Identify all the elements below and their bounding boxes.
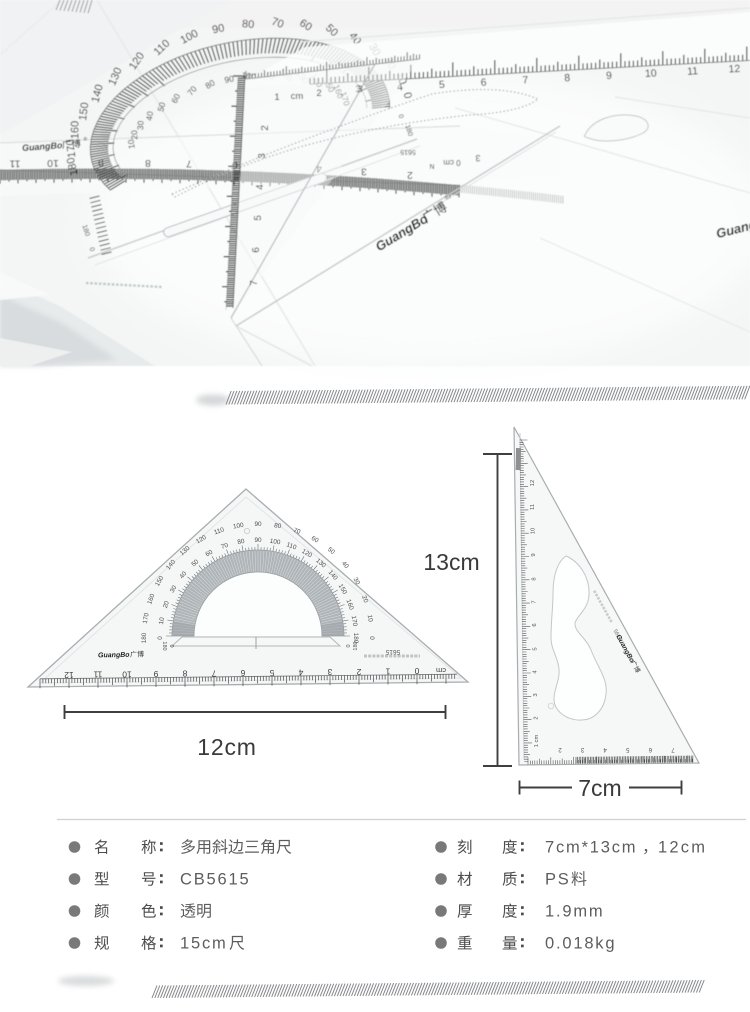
svg-text:0 cm: 0 cm [443, 158, 461, 167]
svg-text:5: 5 [532, 647, 538, 650]
svg-text:PS: PS [545, 871, 571, 889]
svg-text:12cm: 12cm [658, 839, 707, 857]
svg-text:5615: 5615 [385, 648, 400, 655]
svg-text:9: 9 [531, 553, 537, 556]
svg-text:13cm: 13cm [423, 549, 479, 575]
svg-text:7cm*13cm: 7cm*13cm [545, 839, 637, 857]
svg-text:180: 180 [161, 641, 167, 650]
svg-text:8: 8 [564, 72, 571, 84]
svg-text:1: 1 [385, 667, 390, 677]
svg-text:4: 4 [298, 667, 303, 677]
svg-text:9: 9 [606, 70, 613, 82]
svg-text:60: 60 [310, 535, 320, 545]
svg-text:7: 7 [522, 74, 529, 86]
svg-text:12: 12 [530, 480, 536, 486]
svg-text:11: 11 [530, 504, 536, 510]
svg-text:10: 10 [122, 669, 132, 679]
svg-text:N: N [429, 162, 434, 169]
svg-text:90: 90 [211, 22, 225, 36]
svg-text:2: 2 [356, 667, 361, 677]
svg-text:10: 10 [645, 67, 658, 80]
svg-text:170: 170 [65, 139, 79, 158]
svg-text:0: 0 [414, 666, 419, 676]
svg-text:15cm: 15cm [180, 935, 228, 953]
svg-text:11: 11 [9, 158, 20, 170]
svg-text:6: 6 [480, 77, 487, 89]
svg-text:12: 12 [728, 63, 741, 76]
svg-text:6: 6 [240, 668, 245, 678]
svg-text:cm: cm [291, 91, 304, 102]
svg-text:90: 90 [254, 521, 262, 528]
svg-text:5: 5 [626, 746, 630, 753]
svg-text:7cm: 7cm [578, 775, 621, 801]
svg-text:4: 4 [255, 184, 266, 190]
svg-text:5615: 5615 [400, 148, 416, 155]
svg-text:3: 3 [327, 667, 332, 677]
svg-text:1: 1 [274, 92, 279, 103]
svg-text:11: 11 [687, 65, 699, 78]
svg-text:3: 3 [475, 153, 480, 163]
svg-text:0: 0 [157, 636, 164, 640]
svg-text:10: 10 [47, 157, 59, 169]
svg-text:2: 2 [260, 125, 271, 131]
svg-text:5: 5 [439, 79, 446, 91]
svg-text:3: 3 [580, 746, 584, 753]
svg-text:0: 0 [346, 644, 352, 647]
svg-text:3: 3 [533, 693, 539, 696]
svg-text:cm: cm [436, 666, 446, 675]
svg-text:3: 3 [357, 84, 362, 95]
svg-text:7: 7 [532, 600, 538, 603]
svg-text:0: 0 [368, 636, 375, 640]
svg-text:GuangBo: GuangBo [98, 652, 130, 660]
svg-text:1.9mm: 1.9mm [545, 903, 604, 921]
svg-text:5: 5 [269, 668, 274, 678]
svg-text:1 cm: 1 cm [534, 735, 540, 748]
svg-text:180: 180 [353, 641, 359, 650]
svg-text:90: 90 [254, 537, 262, 544]
svg-text:40: 40 [144, 110, 155, 121]
svg-text:0.018kg: 0.018kg [545, 935, 616, 953]
svg-text:10: 10 [531, 528, 537, 534]
svg-text:20: 20 [129, 130, 139, 140]
svg-text:7: 7 [211, 668, 216, 678]
svg-text:7: 7 [671, 746, 675, 753]
svg-text:8: 8 [145, 157, 151, 169]
svg-text:9: 9 [153, 669, 158, 679]
svg-text:40: 40 [340, 560, 350, 570]
svg-text:4: 4 [603, 746, 607, 753]
svg-text:7: 7 [249, 280, 260, 286]
svg-text:5: 5 [253, 215, 264, 221]
svg-text:160: 160 [69, 121, 81, 139]
svg-text:2: 2 [533, 716, 539, 719]
svg-text:80: 80 [242, 18, 255, 31]
svg-text:2: 2 [316, 88, 321, 99]
svg-text:10: 10 [126, 139, 137, 150]
svg-text:6: 6 [532, 623, 538, 626]
svg-text:11: 11 [93, 670, 102, 680]
svg-text:2: 2 [407, 169, 413, 181]
svg-text:CB5615: CB5615 [180, 871, 250, 889]
svg-text:12cm: 12cm [197, 734, 256, 760]
svg-text:12: 12 [64, 670, 74, 680]
svg-text:0: 0 [168, 644, 174, 647]
svg-text:150: 150 [77, 102, 91, 122]
svg-text:6: 6 [648, 746, 652, 753]
svg-text:8: 8 [182, 669, 187, 679]
svg-text:2: 2 [558, 746, 562, 753]
svg-text:6: 6 [251, 247, 262, 253]
svg-text:50: 50 [326, 546, 336, 556]
svg-text:180: 180 [141, 632, 148, 643]
svg-text:30: 30 [135, 120, 145, 130]
svg-text:8: 8 [531, 577, 537, 580]
svg-text:7: 7 [186, 158, 192, 170]
